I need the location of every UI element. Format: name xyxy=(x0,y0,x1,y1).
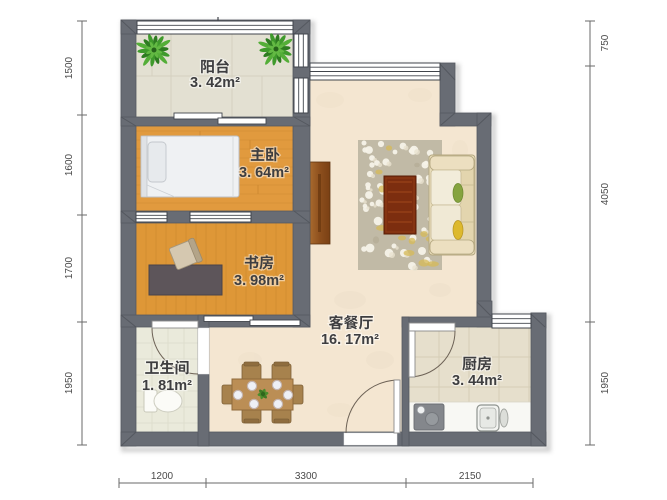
svg-text:3. 98m²: 3. 98m² xyxy=(234,273,284,289)
svg-text:1950: 1950 xyxy=(64,371,75,394)
svg-text:1950: 1950 xyxy=(600,371,611,394)
svg-text:3. 42m²: 3. 42m² xyxy=(190,75,240,91)
svg-text:16. 17m²: 16. 17m² xyxy=(321,332,379,348)
svg-text:3. 64m²: 3. 64m² xyxy=(239,165,289,181)
svg-text:750: 750 xyxy=(600,34,611,51)
svg-text:2150: 2150 xyxy=(459,471,482,482)
svg-text:3300: 3300 xyxy=(295,471,318,482)
svg-text:4050: 4050 xyxy=(600,182,611,205)
svg-text:3. 44m²: 3. 44m² xyxy=(452,373,502,389)
svg-text:1600: 1600 xyxy=(64,153,75,176)
svg-text:1500: 1500 xyxy=(64,56,75,79)
svg-text:1. 81m²: 1. 81m² xyxy=(142,378,192,394)
svg-text:1700: 1700 xyxy=(64,256,75,279)
svg-text:1200: 1200 xyxy=(151,471,174,482)
